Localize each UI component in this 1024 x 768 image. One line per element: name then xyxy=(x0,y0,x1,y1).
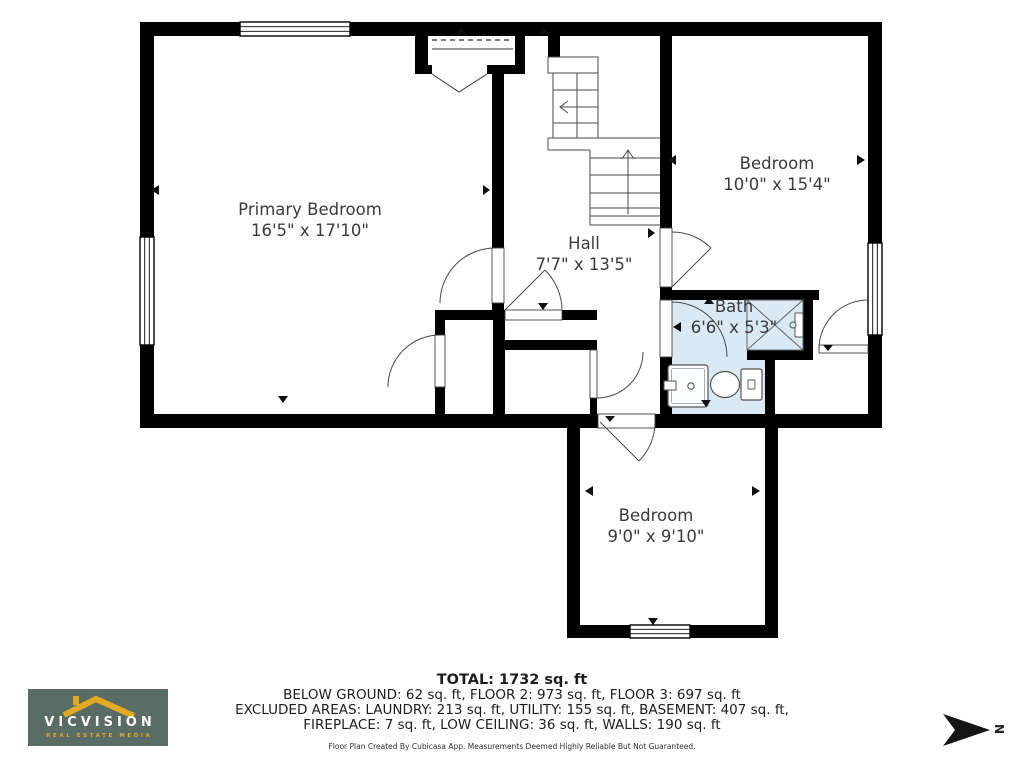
north-label: N xyxy=(992,724,1006,734)
total-area: TOTAL: 1732 sq. ft xyxy=(0,672,1024,688)
room-name: Hall xyxy=(568,234,600,253)
room-label-primary-bedroom: Primary Bedroom 16'5" x 17'10" xyxy=(185,199,435,241)
room-label-bath: Bath 6'6" x 5'3" xyxy=(654,296,814,338)
room-dims: 10'0" x 15'4" xyxy=(677,174,877,195)
bifold-closet-door xyxy=(432,74,487,92)
closet-shelf xyxy=(432,40,513,49)
room-dims: 6'6" x 5'3" xyxy=(654,317,814,338)
vicvision-logo: VICVISION REAL ESTATE MEDIA xyxy=(28,689,168,746)
logo-brand: VICVISION xyxy=(28,715,168,730)
window-bottom xyxy=(630,625,690,638)
door-left-closet xyxy=(435,335,445,387)
room-dims: 16'5" x 17'10" xyxy=(185,220,435,241)
room-name: Bath xyxy=(715,297,753,316)
room-dims: 7'7" x 13'5" xyxy=(509,254,659,275)
window-top xyxy=(240,22,350,36)
room-dims: 9'0" x 9'10" xyxy=(556,526,756,547)
window-right xyxy=(868,243,882,335)
door-primary-bedroom xyxy=(492,248,504,303)
floor-plan: Primary Bedroom 16'5" x 17'10" Hall 7'7"… xyxy=(0,0,1024,768)
room-name: Primary Bedroom xyxy=(238,200,382,219)
stairs xyxy=(548,57,660,225)
floor-plan-drawing xyxy=(0,0,1024,768)
room-label-bedroom-2: Bedroom 10'0" x 15'4" xyxy=(677,153,877,195)
logo-tagline: REAL ESTATE MEDIA xyxy=(28,733,168,739)
sink-vanity-icon xyxy=(664,365,708,407)
window-left xyxy=(140,237,154,345)
room-label-hall: Hall 7'7" x 13'5" xyxy=(509,233,659,275)
compass: N xyxy=(938,712,1018,754)
door-bedroom-2 xyxy=(660,228,672,287)
door-hall-closet xyxy=(505,310,562,320)
room-name: Bedroom xyxy=(619,506,694,525)
room-name: Bedroom xyxy=(740,154,815,173)
door-right-closet xyxy=(590,350,597,398)
roof-icon xyxy=(28,690,168,718)
room-label-bedroom-3: Bedroom 9'0" x 9'10" xyxy=(556,505,756,547)
